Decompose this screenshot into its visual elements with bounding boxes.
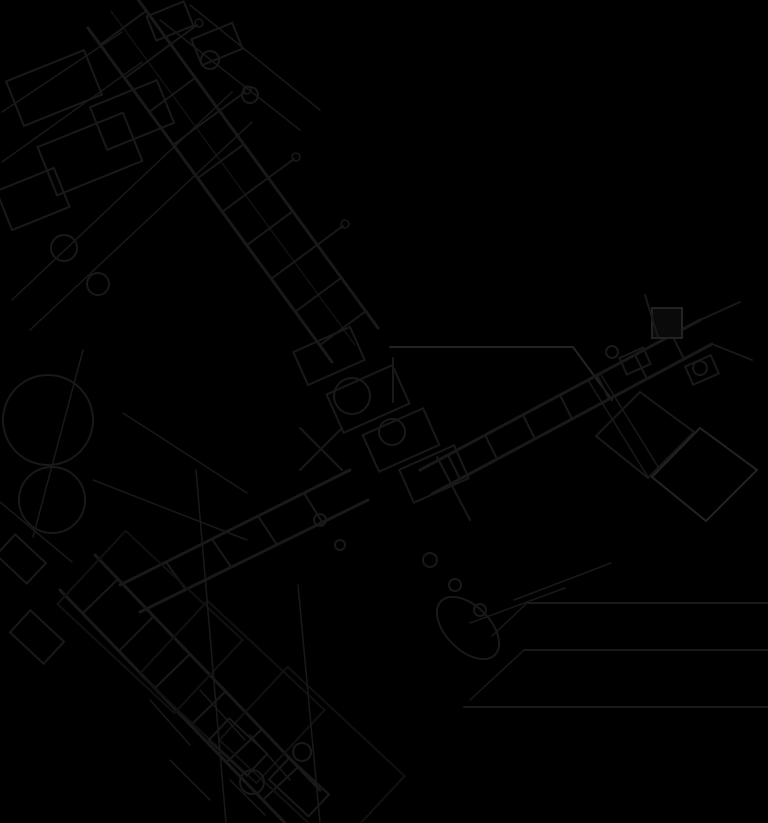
truss-rung (227, 729, 262, 762)
antenna-spur (268, 159, 294, 178)
truss-rung (212, 539, 231, 567)
iss-line-art (0, 0, 768, 823)
module-rect (0, 168, 70, 230)
truss-rung (173, 111, 219, 145)
lower-rail-a (120, 470, 350, 585)
left-diag (93, 480, 247, 540)
truss-rung (155, 654, 190, 688)
long-line (196, 470, 226, 823)
boom-line (12, 92, 232, 300)
dish-circle (87, 273, 109, 295)
truss-rung (198, 144, 244, 178)
hatch (200, 690, 245, 740)
junction-dot (335, 540, 345, 550)
truss-rung (222, 178, 268, 212)
truss-rung (125, 44, 171, 78)
hatch (150, 700, 190, 745)
module-rect (191, 23, 242, 65)
truss-rung (560, 395, 572, 419)
truss-rung (304, 493, 322, 522)
antenna-tip (292, 153, 300, 161)
leaf-ellipse (426, 586, 511, 671)
long-line (298, 585, 320, 823)
truss-rung (100, 11, 146, 45)
artwork-canvas (0, 0, 768, 823)
center-module (327, 365, 410, 433)
antenna-tip (341, 220, 349, 228)
module-rect (6, 50, 102, 126)
left-diag (123, 413, 247, 493)
truss-rung (485, 435, 497, 459)
dish-circle (51, 235, 77, 261)
truss-rung (119, 616, 154, 651)
bottom-dot (293, 743, 311, 761)
drop-dot (449, 579, 461, 591)
cluster-dot (606, 346, 618, 358)
left-bit (10, 610, 64, 663)
truss-rung (247, 211, 293, 245)
drop-dot (423, 553, 437, 567)
boom-line (2, 32, 122, 112)
truss-rung (191, 691, 226, 725)
truss-rung (258, 516, 277, 545)
left-bit (0, 534, 46, 583)
antenna-tip (195, 19, 203, 27)
truss-rung (263, 767, 298, 800)
truss-rung (295, 278, 341, 312)
left-boom (33, 350, 83, 537)
boom-line (2, 62, 142, 162)
truss-rung (83, 579, 118, 613)
left-ring (19, 467, 85, 533)
desc-rail-a (95, 555, 320, 790)
antenna-spur (317, 226, 343, 245)
hatch (170, 760, 210, 800)
solar-panel-left (219, 667, 404, 823)
end-spur (712, 344, 752, 360)
truss-rung (166, 562, 186, 590)
truss-rung (271, 245, 317, 279)
left-ring (3, 375, 93, 465)
corner-boom (390, 347, 612, 400)
truss-rung (320, 311, 366, 345)
solar-panel-left (139, 601, 324, 783)
solar-panel-rhombus (652, 428, 757, 521)
cluster-rect (685, 355, 719, 385)
up-diagonal (514, 563, 611, 600)
boom-line (30, 122, 252, 330)
end-spur (700, 302, 740, 320)
truss-rung (448, 455, 460, 479)
truss-rung (149, 78, 195, 112)
truss-rung (523, 415, 535, 439)
solar-panel-rhombus (596, 392, 694, 478)
